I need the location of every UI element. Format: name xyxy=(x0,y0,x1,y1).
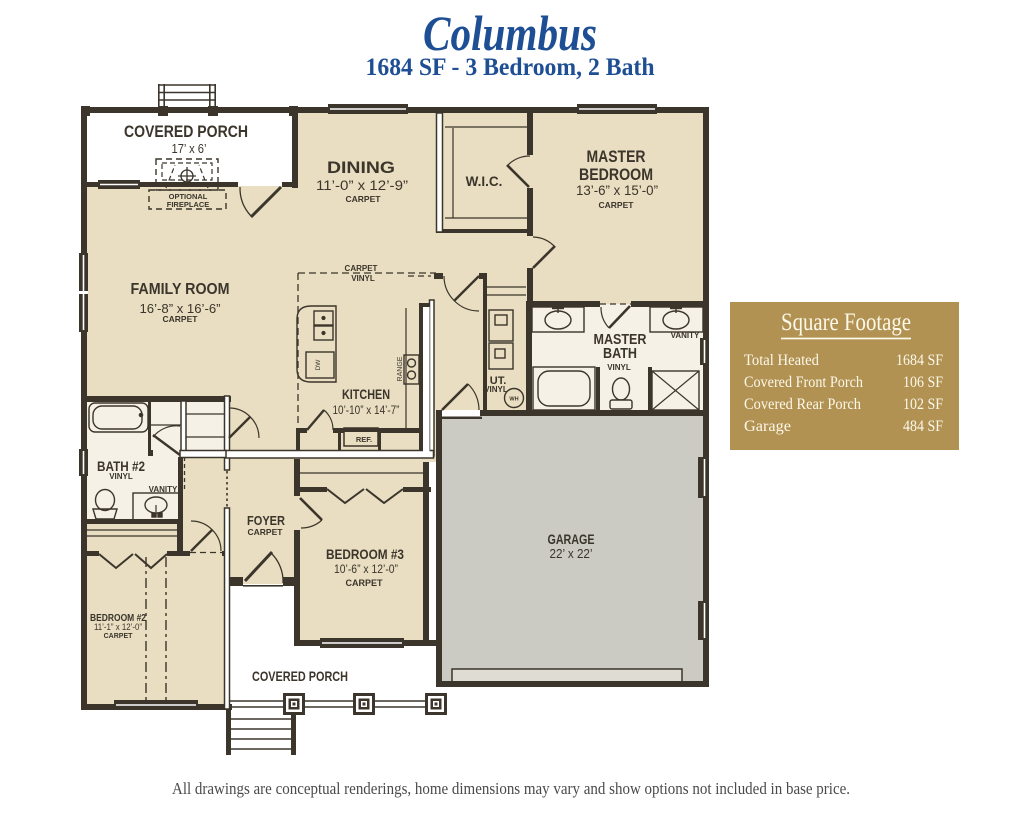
svg-text:Covered Front Porch: Covered Front Porch xyxy=(744,374,863,391)
svg-text:11’-0” x 12’-9”: 11’-0” x 12’-9” xyxy=(316,178,408,193)
svg-text:MASTER: MASTER xyxy=(587,148,646,166)
svg-text:GARAGE: GARAGE xyxy=(548,531,595,547)
svg-text:DINING: DINING xyxy=(327,159,395,177)
svg-text:W.I.C.: W.I.C. xyxy=(466,174,503,189)
svg-text:VANITY: VANITY xyxy=(671,331,700,340)
svg-text:Columbus: Columbus xyxy=(423,5,597,61)
svg-text:DW: DW xyxy=(315,359,322,371)
svg-text:VINYL: VINYL xyxy=(607,363,631,372)
svg-text:11’-1” x 12’-0”: 11’-1” x 12’-0” xyxy=(94,622,142,632)
svg-text:BEDROOM: BEDROOM xyxy=(579,166,653,184)
svg-text:1684 SF: 1684 SF xyxy=(896,352,943,369)
svg-text:RANGE: RANGE xyxy=(397,356,404,381)
svg-text:CARPET: CARPET xyxy=(248,527,284,537)
svg-text:10’-6” x 12’-0”: 10’-6” x 12’-0” xyxy=(334,562,398,576)
svg-text:Total Heated: Total Heated xyxy=(744,352,819,369)
svg-text:484 SF: 484 SF xyxy=(903,418,943,435)
svg-text:106 SF: 106 SF xyxy=(903,374,943,391)
svg-text:CARPET: CARPET xyxy=(345,578,383,588)
svg-text:COVERED PORCH: COVERED PORCH xyxy=(124,122,248,141)
svg-text:KITCHEN: KITCHEN xyxy=(342,386,390,402)
svg-text:All drawings are conceptual re: All drawings are conceptual renderings, … xyxy=(172,779,850,798)
svg-text:FAMILY ROOM: FAMILY ROOM xyxy=(131,281,230,298)
svg-text:17’ x 6’: 17’ x 6’ xyxy=(172,142,207,156)
svg-text:Garage: Garage xyxy=(744,418,791,435)
svg-text:VINYL: VINYL xyxy=(109,472,133,481)
svg-text:FOYER: FOYER xyxy=(247,513,286,528)
svg-text:VANITY: VANITY xyxy=(149,485,178,494)
svg-text:CARPET: CARPET xyxy=(163,314,199,324)
svg-text:102 SF: 102 SF xyxy=(903,396,943,413)
svg-text:VINYL: VINYL xyxy=(484,385,508,394)
svg-text:CARPET: CARPET xyxy=(599,200,635,210)
svg-text:BEDROOM #3: BEDROOM #3 xyxy=(326,546,404,562)
svg-text:FIREPLACE: FIREPLACE xyxy=(167,200,210,209)
svg-text:WH: WH xyxy=(509,397,518,403)
svg-text:22’ x 22’: 22’ x 22’ xyxy=(550,546,593,561)
svg-text:CARPET: CARPET xyxy=(104,633,134,640)
svg-text:CARPET: CARPET xyxy=(345,264,378,273)
svg-text:VINYL: VINYL xyxy=(351,274,375,283)
svg-text:10’-10” x 14’-7”: 10’-10” x 14’-7” xyxy=(333,403,400,417)
svg-text:Covered Rear Porch: Covered Rear Porch xyxy=(744,396,861,413)
svg-text:13’-6” x 15’-0”: 13’-6” x 15’-0” xyxy=(576,183,658,198)
svg-text:CARPET: CARPET xyxy=(346,194,382,204)
svg-text:Square Footage: Square Footage xyxy=(781,309,911,336)
svg-text:COVERED PORCH: COVERED PORCH xyxy=(252,668,348,684)
svg-text:BATH: BATH xyxy=(603,345,637,362)
svg-text:REF.: REF. xyxy=(356,435,372,444)
svg-text:1684 SF - 3 Bedroom, 2 Bath: 1684 SF - 3 Bedroom, 2 Bath xyxy=(366,54,655,81)
